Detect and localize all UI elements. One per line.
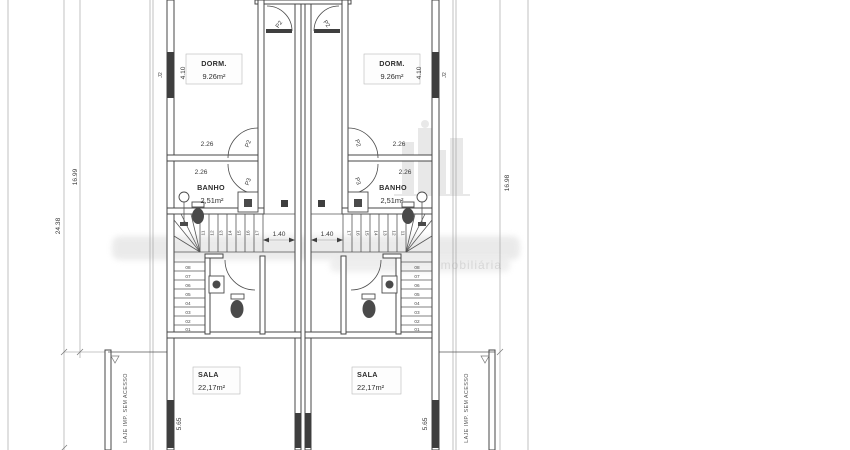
dim-inner-height-right: 16.98 xyxy=(504,174,511,191)
svg-text:06: 06 xyxy=(185,283,191,288)
room-area-banho-right: 2,51m² xyxy=(380,196,404,205)
svg-text:12: 12 xyxy=(210,230,215,236)
door-swing-banho-left xyxy=(228,164,258,194)
room-label-banho-right: BANHO xyxy=(379,183,407,192)
banho-sink-left xyxy=(179,192,189,202)
floor-plan-drawing: imobiliária 24.38 16.99 16.98 LAJE IMP. … xyxy=(0,0,850,450)
dimension-lines: 24.38 16.99 16.98 xyxy=(8,0,528,450)
svg-text:13: 13 xyxy=(383,230,388,236)
svg-text:02: 02 xyxy=(185,319,191,324)
svg-text:1.40: 1.40 xyxy=(273,231,286,238)
tread-numbers-upper-left: 11 12 13 14 15 16 17 xyxy=(201,230,260,236)
svg-text:07: 07 xyxy=(185,274,191,279)
laje-annotation-left: LAJE IMP. SEM ACESSO xyxy=(123,373,129,443)
wc-toilet-left xyxy=(231,294,244,299)
window-dorm-right xyxy=(432,52,439,98)
floor-plan-page: imobiliária 24.38 16.99 16.98 LAJE IMP. … xyxy=(0,0,850,450)
svg-text:01: 01 xyxy=(185,327,191,332)
door-leaf-entry-right xyxy=(314,29,340,33)
room-label-dorm-left: DORM. xyxy=(201,59,226,68)
svg-text:05: 05 xyxy=(414,292,420,297)
svg-text:07: 07 xyxy=(414,274,420,279)
dim-sala-length-right: 5.65 xyxy=(422,417,429,430)
svg-text:03: 03 xyxy=(414,310,420,315)
duct-right xyxy=(318,200,325,207)
door-swing-dorm-right xyxy=(348,128,378,158)
dim-banho-width-left: 2.26 xyxy=(195,169,208,176)
door-swing-dorm-left xyxy=(228,128,258,158)
wc-left xyxy=(205,254,265,334)
window-shaft-right xyxy=(305,413,311,448)
tread-numbers-lower-left: 08 07 06 05 04 03 02 01 xyxy=(185,265,191,332)
door-label-entry-right: P2 xyxy=(321,20,331,30)
svg-text:14: 14 xyxy=(228,230,233,236)
door-label-entry-left: P2 xyxy=(275,20,285,30)
dim-dorm-length-right: 4.10 xyxy=(416,66,423,79)
svg-text:15: 15 xyxy=(365,230,370,236)
svg-text:01: 01 xyxy=(414,327,420,332)
room-label-sala-right: SALA xyxy=(357,370,378,379)
watermark-text: imobiliária xyxy=(437,258,502,272)
dim-total-height-left: 24.38 xyxy=(55,217,62,234)
svg-text:12: 12 xyxy=(392,230,397,236)
svg-text:16: 16 xyxy=(246,230,251,236)
svg-text:08: 08 xyxy=(185,265,191,270)
svg-text:04: 04 xyxy=(185,301,191,306)
banho-sink-right xyxy=(417,192,427,202)
room-area-sala-left: 22,17m² xyxy=(198,383,226,392)
svg-text:14: 14 xyxy=(374,230,379,236)
duct-left xyxy=(281,200,288,207)
room-area-dorm-right: 9.26m² xyxy=(380,72,404,81)
laje-annotation-right: LAJE IMP. SEM ACESSO xyxy=(464,373,470,443)
svg-text:08: 08 xyxy=(414,265,420,270)
svg-text:13: 13 xyxy=(219,230,224,236)
tread-numbers-lower-right: 08 07 06 05 04 03 02 01 xyxy=(414,265,420,332)
room-area-sala-right: 22,17m² xyxy=(357,383,385,392)
dim-banho-width-right: 2.26 xyxy=(399,169,412,176)
wc-toilet-right xyxy=(362,294,375,299)
dim-dorm-width-right: 2.26 xyxy=(393,141,406,148)
svg-text:03: 03 xyxy=(185,310,191,315)
level-marker-icon xyxy=(111,356,119,363)
window-sala-right xyxy=(432,400,439,448)
window-dorm-left xyxy=(167,52,174,98)
room-labels: DORM. 9.26m² DORM. 9.26m² BANHO 2,51m² B… xyxy=(186,54,420,394)
svg-text:06: 06 xyxy=(414,283,420,288)
window-tag-right: J2 xyxy=(442,72,448,78)
svg-text:1.40: 1.40 xyxy=(321,231,334,238)
svg-text:17: 17 xyxy=(255,230,260,236)
room-label-banho-left: BANHO xyxy=(197,183,225,192)
svg-text:04: 04 xyxy=(414,301,420,306)
svg-text:17: 17 xyxy=(347,230,352,236)
room-label-dorm-right: DORM. xyxy=(379,59,404,68)
dim-inner-height-left: 16.99 xyxy=(72,168,79,185)
room-label-sala-left: SALA xyxy=(198,370,219,379)
svg-text:11: 11 xyxy=(401,231,406,236)
door-swing-banho-right xyxy=(348,164,378,194)
svg-text:02: 02 xyxy=(414,319,420,324)
svg-text:15: 15 xyxy=(237,230,242,236)
dim-dorm-width-left: 2.26 xyxy=(201,141,214,148)
door-label-banho-right: P3 xyxy=(353,177,361,187)
window-sala-left xyxy=(167,400,174,448)
dim-sala-length-left: 5.65 xyxy=(176,417,183,430)
level-marker-icon xyxy=(481,356,489,363)
door-label-dorm-right: P2 xyxy=(353,139,361,149)
door-label-dorm-left: P2 xyxy=(245,139,253,149)
window-shaft-left xyxy=(295,413,301,448)
svg-text:11: 11 xyxy=(201,230,206,235)
room-area-banho-left: 2,51m² xyxy=(200,196,224,205)
window-tag-left: J2 xyxy=(158,72,164,78)
banho-toilet-right xyxy=(402,202,414,207)
tread-numbers-upper-right: 17 16 15 14 13 12 11 xyxy=(347,230,406,236)
door-label-banho-left: P3 xyxy=(245,177,253,187)
dim-dorm-length-left: 4.10 xyxy=(180,66,187,79)
room-area-dorm-left: 9.26m² xyxy=(202,72,226,81)
svg-text:05: 05 xyxy=(185,292,191,297)
door-swing-wc-left xyxy=(225,260,255,290)
svg-text:16: 16 xyxy=(356,230,361,236)
